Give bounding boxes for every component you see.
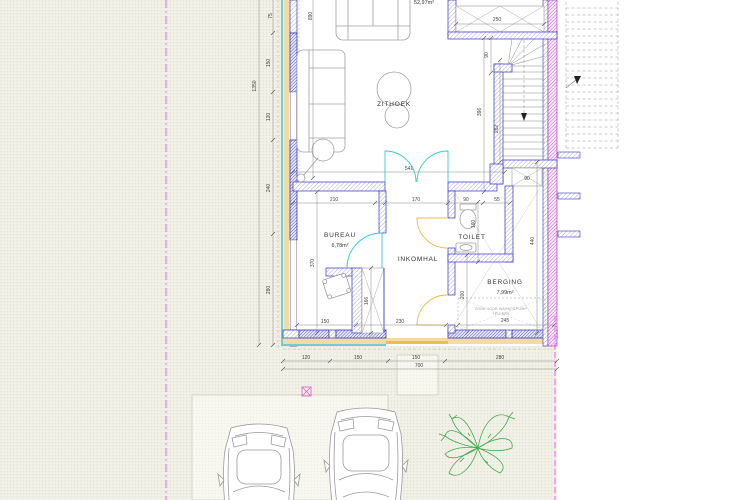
dim-bottom-total: 700 [415,363,424,369]
inkomhal-label: INKOMHAL [398,256,438,263]
car-2-icon [324,408,408,500]
wall-toilet-south [448,254,513,262]
dim-left-b: 150 [266,59,272,68]
dim-left-e: 280 [266,286,272,295]
zone-note-line1: ZONE VOOR WARMTEPOMP [475,307,528,311]
dim-stair-top: 250 [493,17,502,23]
party-wall [543,0,557,346]
dim-hall-b: 170 [412,197,421,203]
dim-berging-height: 440 [530,237,536,246]
dim-left-total: 1350 [252,80,258,91]
dim-shaft: 166 [364,297,370,306]
dim-living-height: 890 [308,12,314,21]
wall-toilet-east [505,186,513,262]
dim-bureau-b: 230 [396,319,405,325]
dim-bureau-height: 370 [310,259,316,268]
top-structure [448,0,557,39]
zone-note-line2: TELLERS [492,312,510,316]
bureau-area-label: 6,78m² [331,243,348,249]
dim-left-a: 75 [268,13,274,19]
entry-threshold [386,341,448,344]
dim-left-d: 240 [266,184,272,193]
wall-bureau-east [379,191,386,233]
dim-hall-a: 210 [330,197,339,203]
sofa-top-icon [336,0,410,40]
berging-area-label: 7,99m² [496,290,513,296]
wall-toilet-west-a [448,191,455,218]
dim-stair-winder: 90 [484,52,490,58]
sink-icon [456,243,476,252]
dim-toilet-height: 160 [471,220,477,229]
wall-hall-north-right [448,182,497,191]
floor-plan-canvas: 1350 75 150 120 240 280 890 370 541 250 … [0,0,740,500]
dim-bottom-b: 150 [354,355,363,361]
dim-stair-flight: 262 [494,125,500,134]
sofa-left-icon [297,50,345,152]
dim-hall-d: 55 [494,197,500,203]
window-front-3 [448,330,506,338]
dim-bottom-d: 280 [496,355,505,361]
dim-left-c: 120 [266,113,272,122]
dim-bottom-c: 150 [412,355,421,361]
window-left-upper [290,33,297,92]
neighbour-parcel [557,0,740,500]
dim-stair-landing: 90 [524,176,530,182]
left-exterior-wall [278,0,299,349]
dim-living-width: 541 [405,166,414,172]
dim-bureau-a: 150 [321,319,330,325]
top-area-label: 52,97m² [414,0,434,6]
dim-stair-total: 396 [477,108,483,117]
dim-hall-height: 200 [460,291,466,300]
dim-bottom-a: 120 [302,355,311,361]
dim-berging-width: 245 [501,318,510,324]
window-front-1 [299,330,329,338]
wall-hall-north-left [293,182,385,191]
floor-plan-drawing: 1350 75 150 120 240 280 890 370 541 250 … [0,0,740,500]
dim-hall-c: 90 [463,197,469,203]
zithoek-label: ZITHOEK [377,101,411,108]
toilet-label: TOILET [458,234,485,241]
berging-label: BERGING [487,279,523,286]
car-1-icon [218,424,300,500]
bureau-label: BUREAU [324,232,356,239]
sill-cyan [283,344,386,346]
